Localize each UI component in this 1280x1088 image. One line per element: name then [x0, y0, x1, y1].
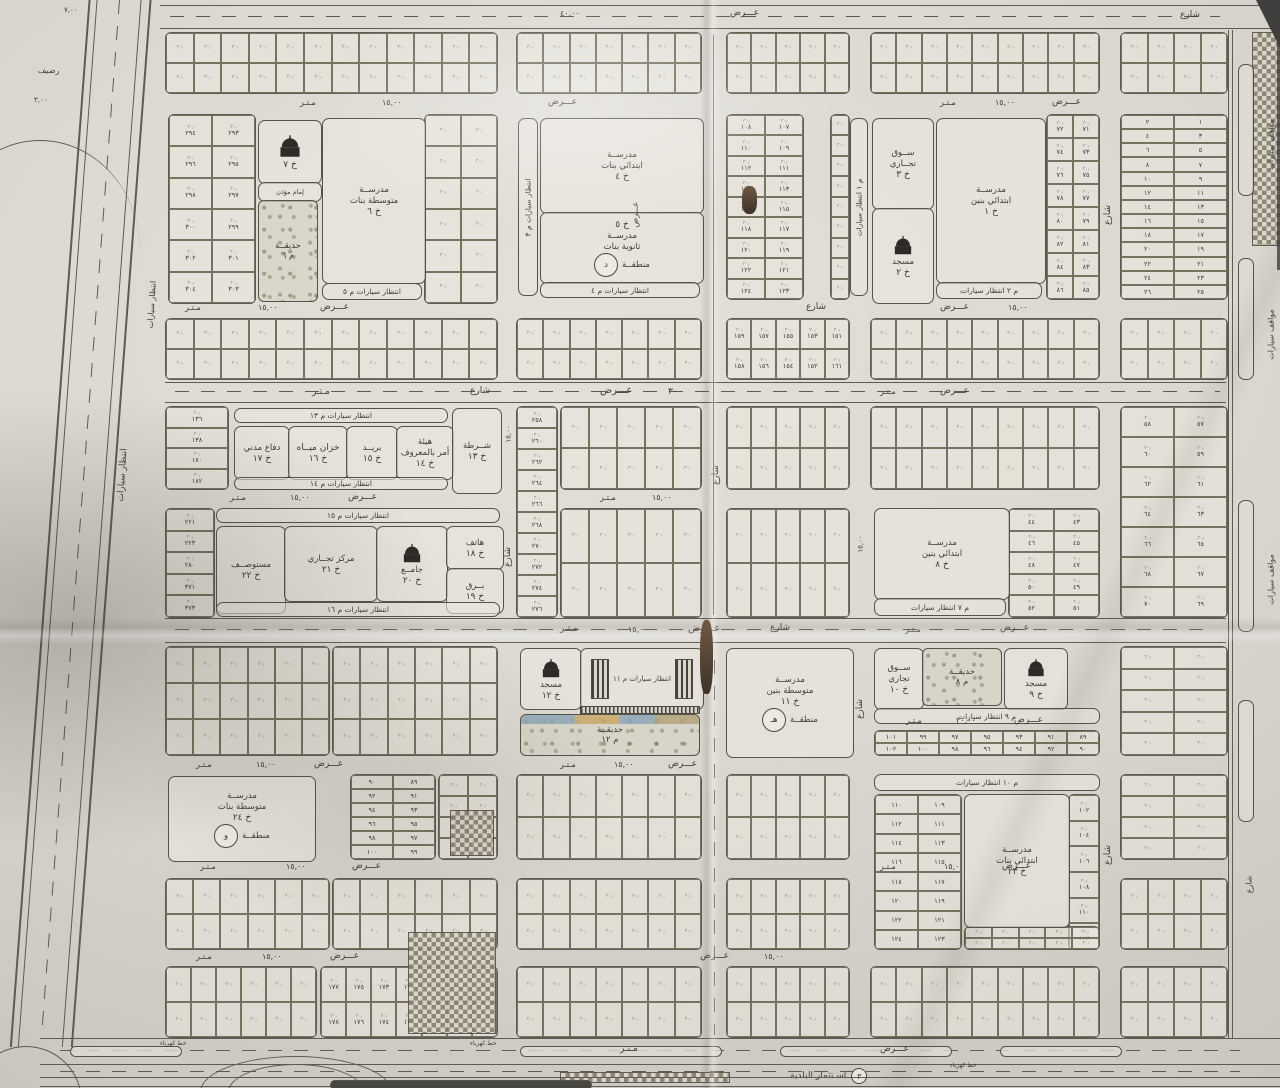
lot-dim: ٣٠٫ [287, 362, 293, 366]
lot-parcel: ٧ [1174, 157, 1227, 171]
lot-parcel: ١٠٠ [907, 743, 939, 755]
lot-parcel: ٣٠٫ [517, 1002, 543, 1037]
lot-parcel: ٣٠٫ [1201, 914, 1228, 949]
lot-parcel: ١١ [1174, 186, 1227, 200]
lot-parcel: ٣٠٫ [248, 683, 275, 719]
lot-dim: ٣٠٫ [1083, 191, 1089, 195]
lot-dim: ٣٠٫ [834, 895, 840, 899]
mosque-dome-icon [890, 235, 916, 256]
parking13-parking-strip: انتظار سيارات م ١٣ [234, 408, 448, 423]
school4-facility: مدرســةابتدائي بناتخ ٤ [540, 118, 704, 214]
lot-parcel: ٣٠٫٨٣ [1073, 253, 1099, 276]
lot-dim: ٣٠٫ [312, 735, 318, 739]
lot-number: ٨٩ [1080, 734, 1087, 740]
lot-parcel: ٣٠٫ [425, 209, 461, 240]
lot-parcel: ٣٠٫ [998, 967, 1023, 1002]
lot-parcel: ٩١ [393, 789, 435, 803]
souq3-label: تجــاري [890, 159, 916, 169]
lot-dim: ٣٠٫ [194, 474, 200, 478]
lot-parcel: ٣٠٫ [1121, 63, 1148, 93]
lot-parcel: ٣٠٫٣٧١ [166, 574, 214, 596]
lot-parcel: ٣٠٫ [570, 1002, 596, 1037]
lot-parcel: ٣٠٫ [1174, 349, 1201, 379]
lot-dim: ٣٠٫ [1158, 983, 1164, 987]
lot-number: ٢٦٠ [532, 438, 542, 444]
lot-dim: ٣٠٫ [479, 805, 485, 809]
lot-block: ٣٠٫٣٠٫٣٠٫٣٠٫٣٠٫٣٠٫٣٠٫٣٠٫٣٠٫٣٠٫٣٠٫٣٠٫٣٠٫٣… [870, 318, 1100, 380]
lot-parcel: ٣٠٫ [1023, 33, 1048, 63]
lot-dim: ٣٠٫ [1131, 983, 1137, 987]
lot-parcel: ٣٠٫ [675, 914, 701, 949]
lot-dim: ٣٠٫ [426, 735, 432, 739]
lot-dim: ٣٠٫ [736, 359, 742, 363]
lot-dim: ٣٠٫ [1158, 1018, 1164, 1022]
lot-parcel: ١٣ [1174, 200, 1227, 214]
street-label: عـــرض [700, 951, 729, 961]
lot-parcel: ٣٠٫١٠٨ [727, 115, 765, 135]
lot-dim: ٣٠٫ [809, 46, 815, 50]
lot-dim: ٣٠٫ [398, 735, 404, 739]
lot-parcel: ٣٠٫ [645, 563, 673, 617]
lot-dim: ٣٠٫ [1083, 46, 1089, 50]
lot-parcel: ٣٠٫ [248, 647, 275, 683]
lot-parcel: ٣٠٫ [221, 319, 249, 349]
lot-number: ١١٩ [779, 247, 789, 253]
lot-parcel: ٣٠٫ [194, 349, 222, 379]
lot-dim: ٣٠٫ [370, 76, 376, 80]
zone-word: منطقــة [622, 260, 650, 270]
lot-parcel: ٣٠٫ [360, 719, 387, 755]
lot-parcel: ٣٠٫ [1148, 349, 1175, 379]
lot-dim: ٣٠٫ [684, 426, 690, 430]
street-label: شارع [1103, 845, 1113, 865]
lot-block: ٣٠٫٣٠٫٣٠٫٣٠٫٣٠٫٣٠٫٣٠٫٣٠٫٣٠٫٣٠٫٣٠٫٣٠٫٣٠٫٣… [165, 32, 498, 94]
school6-label: متوسطة بنات [350, 196, 398, 206]
lot-dim: ٣٠٫ [881, 467, 887, 471]
lot-parcel: ٣٠٫ [166, 349, 194, 379]
lot-parcel: ٣٠٫٦٠ [1121, 437, 1174, 467]
lot-parcel: ٣٠٫٦٩ [1174, 587, 1227, 617]
lot-parcel: ٣٠٫ [800, 967, 824, 1002]
lot-dim: ٣٠٫ [1131, 76, 1137, 80]
lot-parcel: ٣٠٫ [648, 879, 674, 914]
lot-dim: ٣٠٫ [194, 453, 200, 457]
lot-dim: ٣٠٫ [685, 794, 691, 798]
lot-parcel: ٣٠٫ [589, 509, 617, 563]
watertank-facility: خزان ميــاهخ ١٦ [288, 426, 348, 480]
lot-parcel: ٣٠٫ [596, 879, 622, 914]
lot-dim: ٣٠٫ [440, 191, 446, 195]
lot-dim: ٣٠٫ [957, 983, 963, 987]
lot-parcel: ١٢٢ [875, 911, 918, 930]
lot-dim: ٣٠٫ [1184, 46, 1190, 50]
lot-dim: ٣٠٫ [906, 467, 912, 471]
lot-parcel: ٣٠٫ [998, 33, 1023, 63]
lot-dim: ٣٠٫ [1211, 895, 1217, 899]
lot-dim: ٣٠٫ [230, 188, 236, 192]
street-label: ١٥,٠٠ [628, 625, 648, 634]
lot-number: ١٦١ [832, 363, 842, 369]
lot-dim: ٣٠٫ [1144, 537, 1150, 541]
lot-number: ٢٧٦ [532, 606, 542, 612]
lot-number: ١٠٢ [1079, 807, 1089, 813]
lot-parcel: ٣٠٫ [727, 967, 751, 1002]
mosque7-label: خ ٧ [283, 160, 297, 170]
lot-dim: ٣٠٫ [1058, 1018, 1064, 1022]
lot-dim: ٣٠٫ [632, 332, 638, 336]
lot-dim: ٣٠٫ [476, 223, 482, 227]
lot-number: ٦٢ [1144, 481, 1151, 487]
street-label: ٢٠,٠٠ [956, 716, 976, 725]
parking2-parking-strip: م ٢ انتظار سيارات [936, 282, 1042, 299]
lot-dim: ٣٠٫ [370, 332, 376, 336]
lot-number: ١٥٧ [758, 333, 768, 339]
tradectr-label: خ ٢١ [322, 565, 340, 575]
lot-parcel: ٩٦ [351, 817, 393, 831]
built-area-checker [408, 932, 496, 1034]
lot-number: ١١٢ [741, 165, 751, 171]
street-label: مـتـر [300, 98, 316, 107]
lot-dim: ٣٠٫ [1144, 417, 1150, 421]
lot-number: ١٢٣ [934, 936, 944, 942]
lot-dim: ٣٠٫ [527, 930, 533, 934]
lot-dim: ٣٠٫ [785, 588, 791, 592]
lot-dim: ٣٠٫ [834, 983, 840, 987]
lot-number: ٨٩ [411, 779, 418, 785]
lot-dim: ٣٠٫ [809, 836, 815, 840]
lot-parcel: ٣٠٫ [800, 775, 824, 817]
lot-parcel: ٣٠٫ [570, 914, 596, 949]
lot-dim: ٣٠٫ [1033, 76, 1039, 80]
street-label: خط كهرباء [470, 1040, 497, 1047]
zone-letter-circle: و [214, 824, 238, 848]
corner-road-arc [0, 140, 140, 361]
lot-number: ٩٠ [369, 779, 376, 785]
lot-parcel: ٣٠٫ [442, 683, 469, 719]
lot-parcel: ٣٠٫ [1174, 669, 1227, 691]
lot-number: ١١٤ [891, 840, 901, 846]
lot-dim: ٣٠٫ [957, 332, 963, 336]
souq3-label: خ ٣ [896, 170, 910, 180]
lot-dim: ٣٠٫ [1007, 362, 1013, 366]
lot-parcel: ٣٠٫ [727, 33, 751, 63]
lot-number: ٦٤ [1144, 511, 1151, 517]
lot-parcel: ٣٠٫ [1174, 775, 1227, 796]
road-median-island [70, 1046, 182, 1057]
lot-dim: ٣٠٫ [580, 836, 586, 840]
lot-parcel: ٣٠٫ [166, 33, 194, 63]
lot-parcel: ٣٠٫ [1121, 712, 1174, 734]
lot-parcel: ٣٠٫ [831, 115, 849, 135]
lot-dim: ٣٠٫ [300, 983, 306, 987]
lot-dim: ٣٠٫ [187, 558, 193, 562]
lot-dim: ٣٠٫ [398, 930, 404, 934]
lot-number: ٥٢ [1028, 605, 1035, 611]
lot-dim: ٣٠٫ [785, 836, 791, 840]
lot-parcel: ٣٠٫ [302, 647, 329, 683]
lot-dim: ٣٠٫ [342, 46, 348, 50]
lot-dim: ٣٠٫ [381, 980, 387, 984]
school5-label: ثانوية بنات [604, 242, 641, 252]
lot-parcel: ٣٠٫٢٩٩ [212, 209, 255, 240]
street-label: عـــرض [1014, 715, 1043, 725]
lot-number: ٢٧٠ [532, 543, 542, 549]
lot-parcel: ٣٠٫ [414, 63, 442, 93]
lot-parcel: ٣٠٫ [193, 719, 220, 755]
lot-parcel: ٣٠٫ [1148, 1002, 1175, 1037]
lot-parcel: ٣٠٫ [896, 349, 921, 379]
lot-dim: ٣٠٫ [834, 426, 840, 430]
lot-parcel: ٣٠٫١٦١ [825, 349, 849, 379]
lot-dim: ٣٠٫ [760, 895, 766, 899]
street-label: ١٥,٠٠ [857, 535, 865, 552]
street-label: شارع [503, 547, 513, 567]
lot-parcel: ٣٠٫ [751, 775, 775, 817]
lot-parcel: ٩٥ [393, 817, 435, 831]
parking11-lot: انتظار سيارات م ١١ [580, 648, 704, 710]
lot-parcel: ٣٠٫ [922, 967, 947, 1002]
lot-dim: ٣٠٫ [1158, 46, 1164, 50]
lot-dim: ٣٠٫ [1144, 805, 1150, 809]
lot-parcel: ٨٩ [1067, 731, 1099, 743]
lot-parcel: ٩٥ [971, 731, 1003, 743]
lot-parcel: ٣٠٫ [896, 63, 921, 93]
lot-dim: ٣٠٫ [553, 836, 559, 840]
lot-dim: ٣٠٫ [453, 895, 459, 899]
lot-parcel: ٣٠٫ [166, 879, 193, 914]
civildef-label: دفاع مدني [244, 443, 281, 453]
lot-dim: ٣٠٫ [1058, 426, 1064, 430]
lot-number: ٤ [1146, 133, 1150, 139]
lot-parcel: ٣٠٫ [589, 407, 617, 448]
lot-number: ٣٠٢ [185, 255, 195, 261]
lot-dim: ٣٠٫ [553, 1018, 559, 1022]
lot-number: ١٢٤ [891, 936, 901, 942]
lot-dim: ٣٠٫ [785, 329, 791, 333]
lot-dim: ٣٠٫ [906, 983, 912, 987]
lot-parcel: ٣٠٫ [249, 63, 277, 93]
lot-block: ٣٠٫٣٠٫٣٠٫٣٠٫٣٠٫٣٠٫٣٠٫٣٠٫٣٠٫٣٠٫ [726, 406, 850, 490]
lot-dim: ٣٠٫ [606, 836, 612, 840]
lot-dim: ٣٠٫ [580, 895, 586, 899]
school1-label: خ ١ [984, 207, 998, 217]
lot-dim: ٣٠٫ [1081, 828, 1087, 832]
lot-parcel: ٣٠٫ [1148, 967, 1175, 1002]
lot-number: ١٠٨ [741, 124, 751, 130]
lot-parcel: ٣٠٫ [439, 775, 468, 796]
lot-parcel: ٣٠٫ [461, 146, 497, 177]
lot-dim: ٣٠٫ [1184, 895, 1190, 899]
lot-parcel: ٣٠٫ [871, 33, 896, 63]
lot-number: ١٧٥ [353, 984, 363, 990]
lot-dim: ٣٠٫ [553, 46, 559, 50]
lot-parcel: ٣٠٫ [596, 817, 622, 859]
lot-dim: ٣٠٫ [628, 426, 634, 430]
lot-parcel: ٣٠٫ [617, 563, 645, 617]
lot-parcel: ٣٠٫ [561, 509, 589, 563]
lot-number: ٨٣ [1083, 264, 1090, 270]
lot-dim: ٣٠٫ [1197, 826, 1203, 830]
lot-parcel: ٣٠٫ [727, 448, 751, 489]
lot-parcel: ٣٠٫ [570, 775, 596, 817]
lot-dim: ٣٠٫ [781, 182, 787, 186]
street-label: مـتـر [600, 493, 616, 502]
lot-dim: ٣٠٫ [685, 836, 691, 840]
lot-number: ١١٨ [741, 226, 751, 232]
lot-parcel: ٣٠٫١٠٧ [765, 115, 803, 135]
lot-number: ١ [1199, 119, 1203, 125]
lot-parcel: ٣٠٫ [291, 967, 316, 1002]
lot-block: ٣٠٫٣٠٫٣٠٫٣٠٫٣٠٫٣٠٫٣٠٫٣٠٫ [1120, 774, 1228, 860]
lot-dim: ٣٠٫ [285, 895, 291, 899]
lot-parcel: ٣٠٫ [675, 817, 701, 859]
lot-dim: ٣٠٫ [476, 160, 482, 164]
lot-dim: ٣٠٫ [527, 76, 533, 80]
lot-dim: ٣٠٫ [534, 539, 540, 543]
street-label: مـتـر [560, 760, 576, 769]
lot-number: ١٠٩ [934, 802, 944, 808]
lot-dim: ٣٠٫ [1056, 942, 1062, 946]
lot-parcel: ٣٠٫ [543, 349, 569, 379]
lot-dim: ٣٠٫ [834, 359, 840, 363]
lot-dim: ٣٠٫ [1033, 426, 1039, 430]
lot-parcel: ٣٠٫٢٩٣ [212, 115, 255, 146]
jame-label: خ ٢٠ [403, 576, 421, 586]
parking4-parking-label: انتظار سيارات م ٤ [591, 286, 649, 295]
lot-block: ٣٠٫٣٠٫٣٠٫٣٠٫٣٠٫٣٠٫٣٠٫٣٠٫٣٠٫ [830, 114, 850, 300]
lot-dim: ٣٠٫ [1007, 983, 1013, 987]
lot-dim: ٣٠٫ [684, 467, 690, 471]
lot-dim: ٣٠٫ [187, 220, 193, 224]
lot-dim: ٣٠٫ [342, 76, 348, 80]
lot-dim: ٣٠٫ [370, 46, 376, 50]
lot-parcel: ٣٠٫ [972, 319, 997, 349]
lot-number: ٤٧ [1073, 562, 1080, 568]
lot-parcel: ٣٠٫ [727, 817, 751, 859]
lot-parcel: ٣٠٫١٧٤ [371, 1002, 396, 1037]
lot-dim: ٣٠٫ [957, 76, 963, 80]
lot-dim: ٣٠٫ [684, 534, 690, 538]
lot-parcel: ٣٠٫٢٩٥ [212, 146, 255, 177]
lot-dim: ٣٠٫ [809, 983, 815, 987]
lot-dim: ٣٠٫ [743, 263, 749, 267]
lot-number: ١٢١ [934, 917, 944, 923]
lot-parcel: ٣٠٫ [947, 1002, 972, 1037]
lot-parcel: ٣٠٫ [166, 1002, 191, 1037]
lot-parcel: ٣٠٫ [1121, 775, 1174, 796]
lot-parcel: ٣٠٫ [622, 1002, 648, 1037]
lot-dim: ٣٠٫ [1144, 742, 1150, 746]
lot-dim: ٣٠٫ [315, 76, 321, 80]
street-label: عـــرض [320, 302, 349, 312]
lot-parcel: ٣٠٫ [570, 319, 596, 349]
lot-parcel: ٣٠٫ [922, 319, 947, 349]
lot-parcel: ٣٠٫١١٢ [727, 156, 765, 176]
lot-dim: ٣٠٫ [760, 426, 766, 430]
lot-parcel: ٣٠٫ [216, 1002, 241, 1037]
lot-number: ٩٨ [369, 835, 376, 841]
street-label: عـــرض [330, 951, 359, 961]
lot-number: ١١٣ [934, 840, 944, 846]
lot-parcel: ١٢ [1121, 186, 1174, 200]
mosque9-label: مسجد [1025, 679, 1047, 689]
lot-dim: ٣٠٫ [1073, 580, 1079, 584]
lot-dim: ٣٠٫ [957, 362, 963, 366]
lot-number: ٣٠١ [228, 255, 238, 261]
lot-parcel: ٣٠٫ [414, 349, 442, 379]
lot-parcel: ٣٠٫ [570, 63, 596, 93]
lot-parcel: ٣٠٫ [359, 349, 387, 379]
lot-dim: ٣٠٫ [480, 663, 486, 667]
lot-number: ٩٢ [1048, 746, 1055, 752]
lot-parcel: ٣٠٫ [831, 217, 849, 237]
lot-parcel: ٣٠٫١٨٠ [166, 448, 228, 469]
lot-dim: ٣٠٫ [177, 362, 183, 366]
lot-parcel: ٩١ [1035, 731, 1067, 743]
lot-dim: ٣٠٫ [1144, 784, 1150, 788]
lot-dim: ٣٠٫ [632, 794, 638, 798]
parking11-label: انتظار سيارات م ١١ [613, 674, 671, 684]
lot-dim: ٣٠٫ [658, 983, 664, 987]
lot-parcel: ٣٠٫ [1174, 63, 1201, 93]
zone-word: منطقــة [242, 831, 270, 841]
police-label: شــرطة [463, 441, 491, 451]
lot-dim: ٣٠٫ [785, 76, 791, 80]
parking2-parking-label: م ٢ انتظار سيارات [960, 286, 1018, 295]
lot-parcel: ٣٠٫ [388, 647, 415, 683]
lot-dim: ٣٠٫ [1158, 76, 1164, 80]
lot-parcel: ٣٠٫١٧٨ [321, 1002, 346, 1037]
lot-parcel: ٣٠٫٥٧ [1174, 407, 1227, 437]
lot-parcel: ٣٠٫٧٥ [1073, 161, 1099, 184]
lot-dim: ٣٠٫ [834, 836, 840, 840]
lot-number: ٢٦٨ [532, 522, 542, 528]
lot-parcel: ٣٠٫ [266, 967, 291, 1002]
lot-dim: ٣٠٫ [225, 983, 231, 987]
lot-parcel: ٣٠٫١٥٢ [800, 349, 824, 379]
lot-parcel: ١٠١ [875, 731, 907, 743]
street-label: عـــرض [940, 302, 969, 312]
lot-number: ٢٩٨ [185, 192, 195, 198]
lot-dim: ٣٠٫ [258, 930, 264, 934]
lot-number: ٢٦٦ [532, 501, 542, 507]
school4-label: ابتدائي بنات [601, 161, 643, 171]
lot-block: ٣٠٫٣٠٫٣٠٫٣٠٫٣٠٫٣٠٫٣٠٫٣٠٫٣٠٫٣٠٫٣٠٫٣٠٫٣٠٫٣… [516, 318, 702, 380]
lot-parcel: ٣٠٫ [388, 879, 415, 914]
lot-number: ١٢٠ [741, 247, 751, 253]
lot-parcel: ٣٠٫ [675, 1002, 701, 1037]
lot-parcel: ٣٠٫ [304, 319, 332, 349]
lot-parcel: ٣٠٫ [360, 647, 387, 683]
lot-parcel: ٣٠٫ [825, 967, 849, 1002]
lot-parcel: ٣٠٫ [947, 349, 972, 379]
lot-parcel: ٣٠٫ [972, 1002, 997, 1037]
parking1-parking-label: م ١ انتظار سيارات [855, 178, 864, 236]
lot-parcel: ١٠٠ [351, 845, 393, 859]
lot-dim: ٣٠٫ [781, 222, 787, 226]
lot-parcel: ٣٠٫ [1201, 879, 1228, 914]
street-label: عـــرض [880, 1044, 909, 1054]
parking14-parking-strip: انتظار سيارات م ١٤ [234, 477, 448, 490]
lot-parcel: ٣٠٫٧٤ [1047, 138, 1073, 161]
lot-block: ٣٠٫٢٢١٣٠٫٢٢٣٣٠٫٢٨٠٣٠٫٣٧١٣٠٫٣٧٣ [165, 508, 215, 618]
lot-parcel: ١٧ [1174, 228, 1227, 242]
lot-dim: ٣٠٫ [232, 332, 238, 336]
parking16-parking-label: انتظار سيارات م ١٦ [327, 605, 389, 614]
phone-facility: هاتفخ ١٨ [446, 526, 504, 570]
lot-parcel: ٣٠٫٥٢ [1009, 595, 1054, 617]
lot-parcel: ٣٠٫٦٧ [1174, 557, 1227, 587]
